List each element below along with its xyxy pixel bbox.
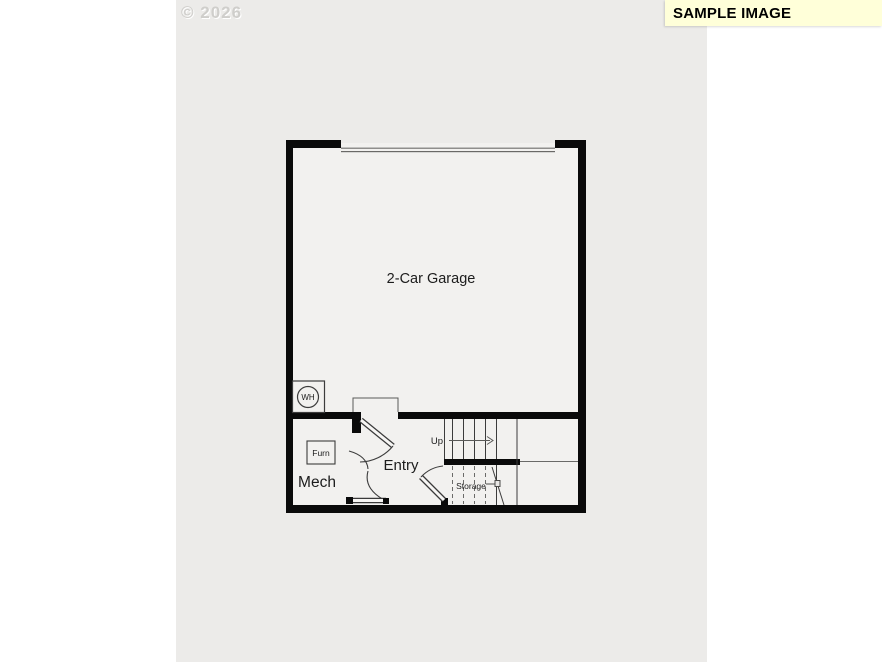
storage-label: Storage	[456, 481, 486, 491]
wall-left	[286, 140, 293, 513]
garage-room-label: 2-Car Garage	[387, 271, 476, 287]
wall-bottom	[286, 505, 586, 513]
furnace: Furn	[307, 441, 335, 464]
up-label: Up	[431, 436, 443, 447]
water-heater-label: WH	[301, 393, 315, 402]
wall-top-left-segment	[286, 140, 341, 148]
wall-right	[578, 140, 586, 513]
mech-room-label: Mech	[298, 474, 336, 491]
stair-rail-bar	[444, 459, 520, 465]
wall-garage-divider-right	[398, 412, 585, 419]
entry-room-label: Entry	[383, 457, 419, 474]
entry-door-recess	[353, 398, 398, 412]
floor-plan: WH Furn	[0, 0, 882, 662]
furnace-label: Furn	[312, 448, 330, 458]
screenshot-root: © 2026 SAMPLE IMAGE WH	[0, 0, 882, 662]
wall-top-right-segment	[555, 140, 586, 148]
water-heater: WH	[293, 381, 325, 413]
wall-door-jamb-stub	[352, 412, 361, 433]
